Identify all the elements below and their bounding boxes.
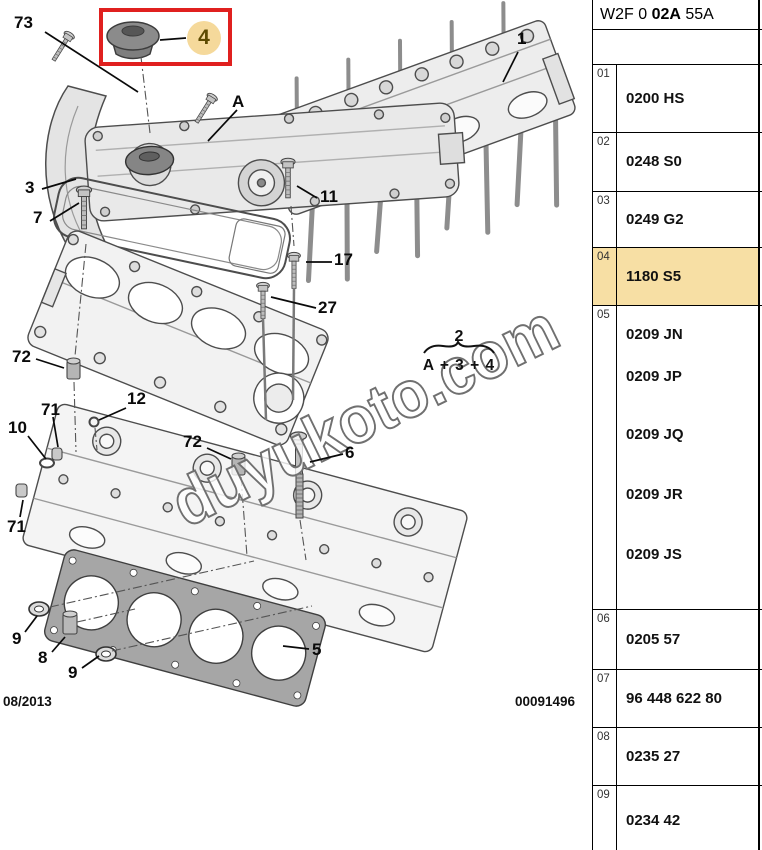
callout-A[interactable]: A <box>232 93 244 110</box>
valve-cover <box>84 102 467 222</box>
part-row-number: 01 <box>593 65 617 132</box>
part-code: 0209 JP <box>626 366 762 388</box>
part-code: 0209 JQ <box>626 424 762 446</box>
exploded-diagram: duyukoto.com 2 <box>0 0 592 850</box>
part-codes: 0249 G2 <box>617 192 762 247</box>
callout-73[interactable]: 73 <box>14 14 33 31</box>
part-row-number: 08 <box>593 728 617 785</box>
part-codes: 1180 S5 <box>617 248 762 305</box>
header-code-prefix: W2F 0 <box>600 6 652 23</box>
callout-17[interactable]: 17 <box>334 251 353 268</box>
part-row-number: 05 <box>593 306 617 609</box>
parts-catalog-page: duyukoto.com 2 <box>0 0 762 850</box>
part-row-07[interactable]: 0796 448 622 80 <box>593 670 762 728</box>
screw-73a <box>49 30 76 64</box>
part-row-number: 04 <box>593 248 617 305</box>
part-code: 0209 JN <box>626 324 762 346</box>
part-row-number: 03 <box>593 192 617 247</box>
callout-72[interactable]: 72 <box>183 433 202 450</box>
part-codes: 0200 HS <box>617 65 762 132</box>
part-code: 0200 HS <box>626 88 762 110</box>
part-codes: 0209 JN0209 JP0209 JQ0209 JR0209 JS <box>617 306 762 609</box>
callout-3[interactable]: 3 <box>25 179 34 196</box>
footer-doc-number: 00091496 <box>515 694 575 709</box>
callout-6[interactable]: 6 <box>345 444 354 461</box>
part-row-06[interactable]: 060205 57 <box>593 610 762 670</box>
part-code: 0209 JR <box>626 484 762 506</box>
callout-11[interactable]: 11 <box>320 188 338 205</box>
callout-1[interactable]: 1 <box>517 30 526 47</box>
part-row-number: 02 <box>593 133 617 191</box>
part-code: 0249 G2 <box>626 209 762 231</box>
part-row-09[interactable]: 090234 42 <box>593 786 762 850</box>
part-code: 0205 57 <box>626 629 762 651</box>
callout-71[interactable]: 71 <box>41 401 60 418</box>
callout-5[interactable]: 5 <box>312 641 321 658</box>
callout-9[interactable]: 9 <box>12 630 21 647</box>
part-row-number: 06 <box>593 610 617 669</box>
callout-7[interactable]: 7 <box>33 209 42 226</box>
part-codes: 0235 27 <box>617 728 762 785</box>
part-code: 0248 S0 <box>626 151 762 173</box>
formula-denominator: A + 3 + 4 <box>423 357 495 374</box>
part-row-number: 09 <box>593 786 617 850</box>
callout-12[interactable]: 12 <box>127 390 146 407</box>
part-code: 0235 27 <box>626 746 762 768</box>
part-row-05[interactable]: 050209 JN0209 JP0209 JQ0209 JR0209 JS <box>593 306 762 610</box>
cap-71a <box>52 448 62 460</box>
part-row-08[interactable]: 080235 27 <box>593 728 762 786</box>
callout-71[interactable]: 71 <box>7 518 26 535</box>
parts-table-spacer <box>593 30 762 65</box>
part-row-number: 07 <box>593 670 617 727</box>
part-row-03[interactable]: 030249 G2 <box>593 192 762 248</box>
part-code: 96 448 622 80 <box>626 688 762 710</box>
dowel-8 <box>63 611 77 634</box>
part-row-02[interactable]: 020248 S0 <box>593 133 762 192</box>
parts-table-right-border <box>758 0 760 850</box>
part-codes: 96 448 622 80 <box>617 670 762 727</box>
part-code: 0209 JS <box>626 544 762 566</box>
callout-4-badge[interactable]: 4 <box>187 21 221 55</box>
callout-9[interactable]: 9 <box>68 664 77 681</box>
dowel-72a <box>67 358 80 379</box>
callout-8[interactable]: 8 <box>38 649 47 666</box>
part-codes: 0205 57 <box>617 610 762 669</box>
part-codes: 0234 42 <box>617 786 762 850</box>
footer-date: 08/2013 <box>3 694 52 709</box>
parts-table: W2F 0 02A 55A 010200 HS020248 S0030249 G… <box>592 0 762 850</box>
cap-71b <box>16 484 27 497</box>
part-codes: 0248 S0 <box>617 133 762 191</box>
seal-9a <box>29 602 49 616</box>
header-code-bold: 02A <box>652 6 681 23</box>
callout-72[interactable]: 72 <box>12 348 31 365</box>
parts-table-rows: 010200 HS020248 S0030249 G2041180 S50502… <box>593 65 762 850</box>
callout-10[interactable]: 10 <box>8 419 27 436</box>
part-code: 0234 42 <box>626 810 762 832</box>
seal-9b <box>96 647 116 661</box>
parts-table-header: W2F 0 02A 55A <box>593 0 762 30</box>
part-row-04[interactable]: 041180 S5 <box>593 248 762 306</box>
callout-27[interactable]: 27 <box>318 299 337 316</box>
part-code: 1180 S5 <box>626 266 762 288</box>
part-row-01[interactable]: 010200 HS <box>593 65 762 133</box>
seal-ring-10 <box>40 459 54 468</box>
header-code-suffix: 55A <box>681 6 714 23</box>
